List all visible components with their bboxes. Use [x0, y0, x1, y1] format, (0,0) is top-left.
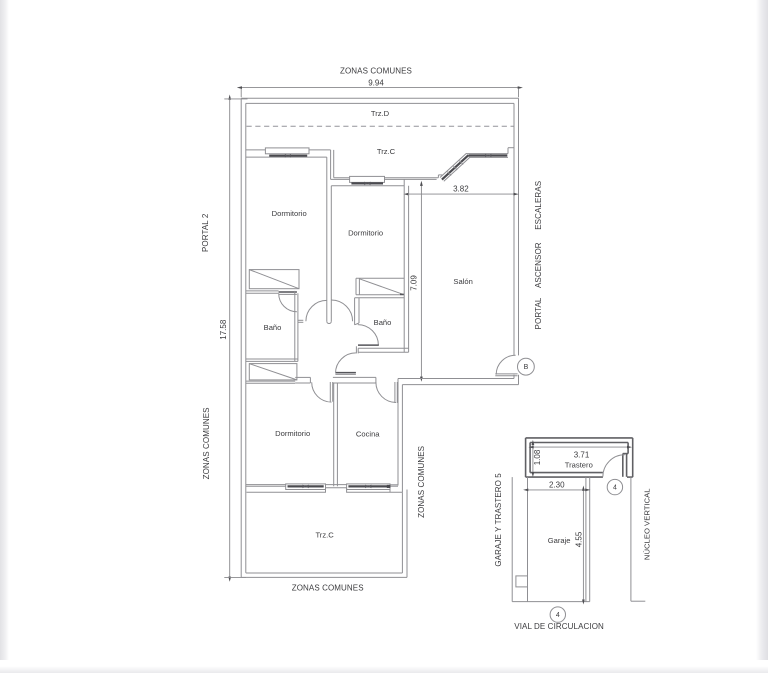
svg-text:4: 4 — [613, 485, 617, 492]
svg-text:Trastero: Trastero — [565, 461, 593, 470]
svg-text:PORTAL: PORTAL — [534, 297, 543, 329]
svg-text:ZONAS COMUNES: ZONAS COMUNES — [292, 584, 364, 593]
svg-text:3.71: 3.71 — [574, 450, 590, 459]
svg-text:Baño: Baño — [374, 318, 392, 327]
svg-text:ZONAS COMUNES: ZONAS COMUNES — [202, 407, 211, 479]
svg-text:Dormitorio: Dormitorio — [348, 229, 383, 238]
svg-text:GARAJE Y TRASTERO 5: GARAJE Y TRASTERO 5 — [494, 473, 503, 567]
svg-text:ZONAS COMUNES: ZONAS COMUNES — [340, 67, 412, 76]
svg-text:4.55: 4.55 — [574, 531, 583, 547]
svg-text:1.08: 1.08 — [533, 449, 542, 465]
svg-text:3.82: 3.82 — [453, 184, 469, 193]
svg-text:Dormitorio: Dormitorio — [275, 429, 310, 438]
svg-text:2.30: 2.30 — [549, 481, 565, 490]
svg-text:9.94: 9.94 — [368, 78, 384, 87]
svg-text:Trz.D: Trz.D — [371, 109, 390, 118]
svg-text:17.58: 17.58 — [219, 319, 228, 340]
svg-text:Trz.C: Trz.C — [315, 530, 334, 539]
svg-text:Garaje: Garaje — [548, 536, 571, 545]
svg-text:4: 4 — [556, 612, 560, 619]
svg-text:VIAL DE CIRCULACION: VIAL DE CIRCULACION — [514, 622, 604, 631]
svg-text:Dormitorio: Dormitorio — [272, 209, 307, 218]
svg-text:ESCALERAS: ESCALERAS — [534, 181, 543, 230]
svg-text:7.09: 7.09 — [409, 275, 418, 291]
svg-text:ASCENSOR: ASCENSOR — [534, 242, 543, 288]
svg-text:NÚCLEO VERTICAL: NÚCLEO VERTICAL — [643, 488, 652, 560]
svg-text:Baño: Baño — [264, 323, 282, 332]
svg-text:Cocina: Cocina — [356, 429, 380, 438]
svg-text:ZONAS COMUNES: ZONAS COMUNES — [417, 446, 426, 518]
svg-text:B: B — [524, 364, 529, 371]
svg-text:PORTAL 2: PORTAL 2 — [201, 213, 210, 252]
svg-text:Salón: Salón — [453, 277, 472, 286]
svg-text:Trz.C: Trz.C — [377, 147, 396, 156]
